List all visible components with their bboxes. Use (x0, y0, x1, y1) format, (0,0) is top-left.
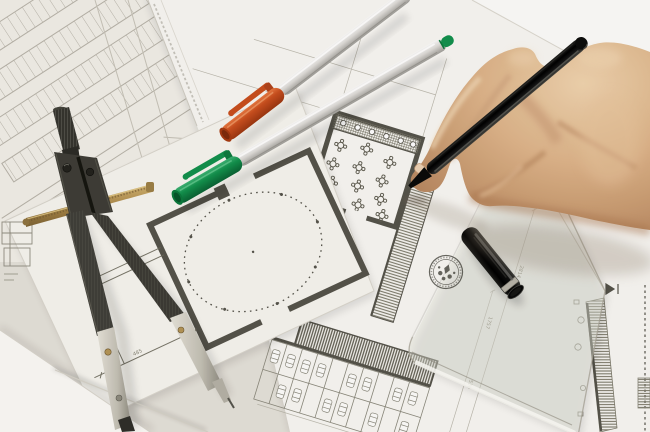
scene-svg: 2814 1757 530 485 (0, 0, 650, 432)
vignette (0, 0, 650, 432)
photo-architectural-drafting-scene: 2814 1757 530 485 (0, 0, 650, 432)
